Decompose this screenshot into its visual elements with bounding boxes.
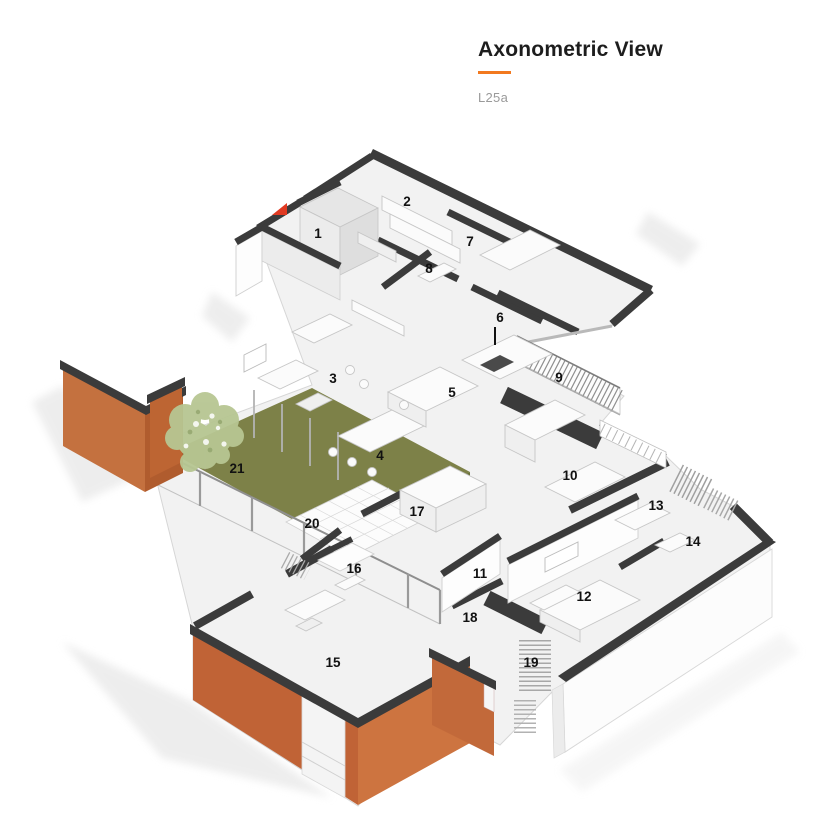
room-label-9: 9 xyxy=(555,370,563,385)
room-label-13: 13 xyxy=(648,498,664,513)
drawing-code: L25a xyxy=(478,90,808,105)
axonometric-view-page: 1 2 3 4 5 6 7 8 9 10 11 12 13 14 15 16 1… xyxy=(0,0,828,828)
room-label-11: 11 xyxy=(473,566,488,581)
room-label-4: 4 xyxy=(376,448,384,463)
room-label-18: 18 xyxy=(462,610,478,625)
north-arrow-icon xyxy=(272,203,287,215)
room-label-5: 5 xyxy=(448,385,456,400)
room-label-7: 7 xyxy=(466,234,474,249)
room-label-16: 16 xyxy=(346,561,362,576)
room-label-8: 8 xyxy=(425,261,433,276)
room-label-20: 20 xyxy=(304,516,319,531)
room-label-21: 21 xyxy=(229,461,245,476)
room-label-17: 17 xyxy=(409,504,424,519)
room-label-19: 19 xyxy=(523,655,538,670)
axonometric-floor-plan: 1 2 3 4 5 6 7 8 9 10 11 12 13 14 15 16 1… xyxy=(0,0,828,828)
room-label-2: 2 xyxy=(403,194,411,209)
title-block: Axonometric View L25a xyxy=(478,38,808,105)
room-label-14: 14 xyxy=(685,534,701,549)
room-label-10: 10 xyxy=(562,468,577,483)
room-label-3: 3 xyxy=(329,371,337,386)
room-label-12: 12 xyxy=(576,589,591,604)
page-title: Axonometric View xyxy=(478,38,808,62)
picture-frame xyxy=(244,344,266,372)
room-label-6: 6 xyxy=(496,310,504,325)
room-label-1: 1 xyxy=(314,226,322,241)
title-accent-rule xyxy=(478,71,511,74)
room-label-15: 15 xyxy=(325,655,341,670)
